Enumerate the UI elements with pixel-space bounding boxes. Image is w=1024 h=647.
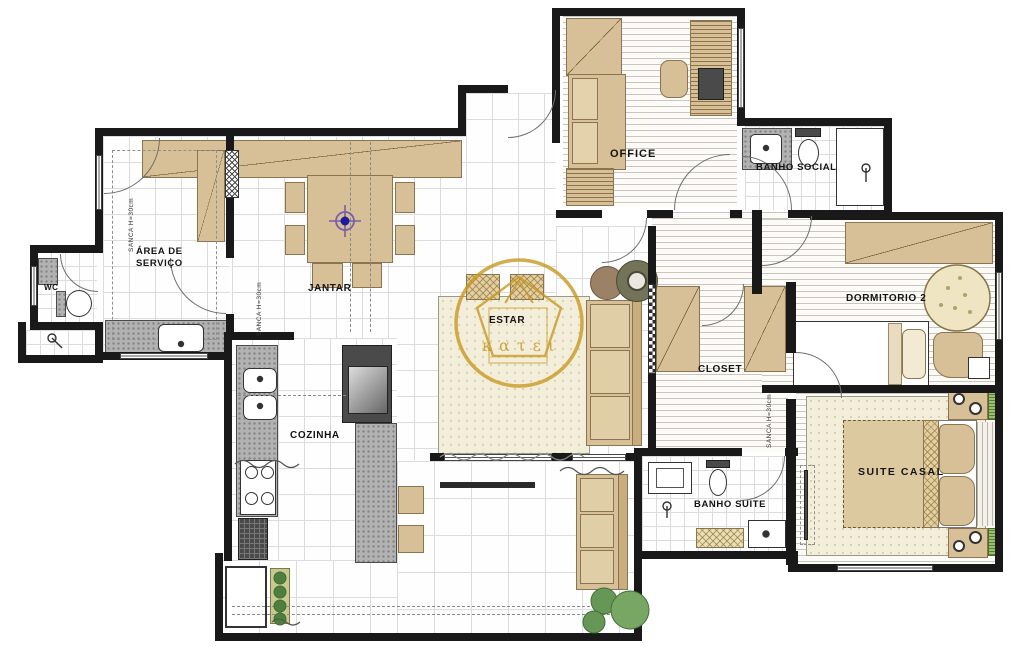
wall-dorm2-top-left	[810, 212, 884, 220]
wall-banho-social-top	[737, 118, 892, 126]
wall-banho-suite-top-a	[642, 448, 742, 456]
wall-entry-top	[458, 85, 508, 93]
window-balcony-2	[572, 454, 626, 461]
railing-dash	[232, 606, 630, 607]
label-estar: ESTAR	[489, 315, 525, 326]
stool	[398, 525, 424, 553]
wall-dorm2-top	[884, 212, 1002, 220]
chair	[285, 225, 305, 255]
wall-balcony-right	[634, 448, 642, 641]
kitchen-island	[355, 423, 397, 563]
chair	[352, 263, 382, 288]
window-wc	[31, 266, 37, 306]
wall-right-upper	[884, 118, 892, 220]
lamp	[953, 393, 965, 405]
chair	[395, 225, 415, 255]
wall-vestibule-bottom	[18, 355, 103, 363]
window-dorm2	[996, 272, 1002, 340]
sofa-cushion	[590, 350, 630, 394]
burner	[261, 466, 274, 479]
office-desk	[698, 68, 724, 100]
wc-toilet-tank	[56, 291, 66, 317]
planter	[270, 568, 290, 624]
floor-vestibule	[26, 330, 96, 355]
dorm2-sheet	[888, 323, 902, 385]
sliding-door-leaf	[440, 482, 535, 488]
bs-shower	[836, 128, 884, 206]
wall-kitchen-left	[224, 338, 232, 561]
label-suite-casal: SUITE CASAL	[858, 466, 945, 478]
burner	[245, 492, 258, 505]
wc-sink	[38, 258, 58, 285]
wall-balcony-left	[215, 553, 223, 641]
office-sofa-cushion	[572, 78, 598, 120]
wall-estar-hall-up	[648, 226, 656, 284]
floor-plan: ÁREA DE SERVIÇO WC JANTAR COZINHA ESTAR …	[0, 0, 1024, 647]
wall-estar-top-a	[556, 210, 602, 218]
bsuite-toilet-bowl	[709, 469, 727, 496]
bsuite-shower	[748, 520, 786, 548]
bsuite-sink-basin	[656, 468, 684, 488]
office-chair	[660, 60, 688, 98]
balcony-bench	[225, 566, 267, 628]
office-wardrobe	[566, 18, 622, 76]
wall-balcony-b	[552, 453, 572, 461]
window-balcony-1	[444, 454, 552, 461]
sofa-back	[632, 300, 642, 446]
dorm2-wardrobe	[845, 222, 993, 264]
sofa-cushion	[590, 304, 630, 348]
bs-toilet-tank	[795, 128, 821, 137]
wall-office-left	[552, 8, 560, 143]
wall-wc-top	[30, 245, 103, 253]
wall-estar-top-b	[647, 210, 673, 218]
bsuite-counter	[696, 528, 744, 548]
office-cabinet	[566, 168, 614, 206]
balcony-sofa-back	[618, 474, 628, 590]
wall-top-main	[95, 128, 465, 136]
wall-suite-left-up	[786, 282, 796, 353]
label-area-servico-2: SERVIÇO	[136, 258, 183, 269]
window-suite	[837, 565, 933, 571]
note-sanca-3: SANCA H=30cm	[766, 394, 773, 448]
tv	[348, 366, 388, 414]
wall-hall-top-a	[730, 210, 742, 218]
kitchen-cabinet-dark	[238, 518, 268, 560]
balcony-cushion	[580, 514, 614, 548]
railing-dash	[232, 614, 630, 615]
wall-banho-suite-bottom	[634, 551, 798, 559]
suite-tv-outline	[800, 465, 815, 545]
office-sofa-cushion	[572, 122, 598, 164]
balcony-cushion	[580, 550, 614, 584]
label-area-servico-1: ÁREA DE	[136, 246, 183, 257]
wall-balcony-a	[430, 453, 444, 461]
window-laundry	[120, 353, 208, 359]
label-banho-suite: BANHO SUITE	[694, 499, 766, 510]
suite-headboard	[977, 422, 995, 526]
kitchen-sink-2	[243, 395, 277, 420]
window-office	[738, 28, 744, 108]
lamp	[969, 531, 982, 544]
label-jantar: JANTAR	[308, 283, 351, 294]
watermark-text: κατει	[482, 336, 561, 355]
wall-dorm2-left	[752, 210, 762, 294]
wall-balcony-bottom	[215, 633, 642, 641]
wall-estar-hall-low	[648, 374, 656, 450]
wc-toilet-bowl	[66, 290, 92, 317]
bsuite-toilet-tank	[706, 460, 730, 468]
note-sanca-2: SANCA H=30cm	[256, 276, 263, 336]
stool	[398, 486, 424, 514]
wall-suite-left-low	[786, 399, 796, 565]
wall-servico-jantar-low	[226, 314, 234, 340]
label-dormitorio-2: DORMITORIO 2	[846, 293, 926, 304]
burner	[261, 492, 274, 505]
wall-checker-left	[648, 284, 656, 374]
window-servico	[96, 155, 102, 210]
wall-balcony-c	[626, 453, 636, 461]
label-cozinha: COZINHA	[290, 430, 340, 441]
wall-office-top	[552, 8, 744, 16]
dorm2-pillow	[902, 329, 926, 379]
kitchen-dash	[238, 395, 346, 396]
sofa-cushion	[590, 396, 630, 440]
note-sanca-1: SANCA H=30cm	[128, 192, 135, 252]
pillow	[510, 274, 544, 300]
label-office: OFFICE	[610, 148, 656, 160]
balcony-cushion	[580, 478, 614, 512]
lamp	[969, 402, 982, 415]
column-hatch	[225, 150, 239, 198]
closet-wardrobe-right	[744, 286, 786, 372]
closet-wardrobe-left	[656, 286, 700, 372]
dorm2-lamp-table	[968, 357, 990, 379]
burner	[245, 466, 258, 479]
chair	[285, 182, 305, 213]
washing-machine	[158, 324, 204, 352]
label-closet: CLOSET	[698, 364, 742, 375]
lamp	[953, 540, 965, 552]
wall-right	[995, 212, 1003, 572]
pillow	[466, 274, 500, 300]
kitchen-sink-1	[243, 368, 277, 393]
suite-pillow	[939, 476, 975, 526]
wall-wc-bottom	[30, 322, 103, 330]
label-wc: WC	[44, 283, 59, 292]
chair	[395, 182, 415, 213]
sanca-line	[370, 142, 371, 332]
sanca-line	[350, 142, 351, 332]
label-banho-social: BANHO SOCIAL	[756, 162, 837, 173]
plant-pot	[627, 271, 647, 291]
